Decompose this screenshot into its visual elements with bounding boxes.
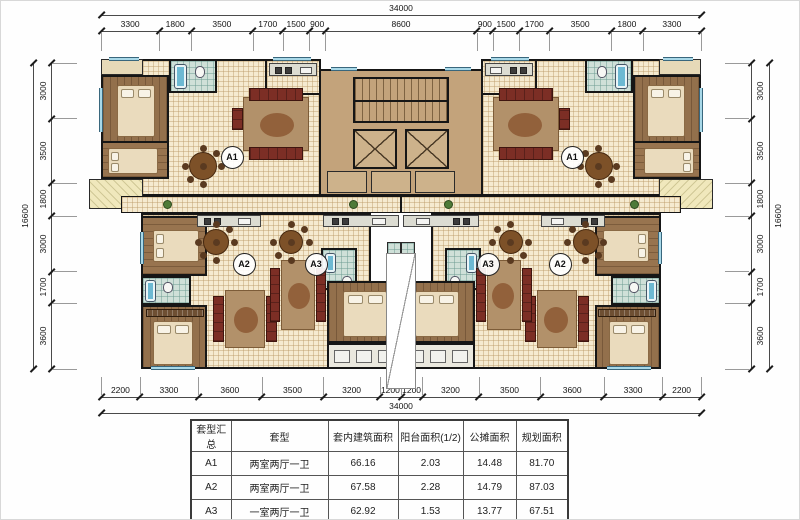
elevator-shaft	[353, 129, 397, 169]
unit-label-circle: A1	[561, 146, 584, 169]
dining-table	[203, 229, 229, 255]
window	[658, 232, 662, 264]
table-cell: 两室两厅一卫	[231, 476, 328, 500]
kitchen-sink	[300, 67, 312, 74]
toilet	[597, 66, 607, 78]
extension-line	[53, 118, 77, 119]
window	[140, 232, 144, 264]
floor-plan-sheet: 3400033001800350017001500900860090015001…	[0, 0, 800, 520]
kitchen-sink	[416, 218, 430, 225]
dimension-line	[769, 63, 770, 369]
rug-pattern	[508, 113, 542, 137]
sofa	[213, 296, 224, 342]
unit-a2-bathroom	[141, 276, 191, 305]
dimension-total-label: 34000	[389, 401, 413, 411]
pillow	[439, 295, 454, 304]
dimension-label: 3300	[662, 19, 681, 29]
armchair	[559, 108, 570, 130]
meter-room	[327, 171, 367, 193]
extension-line	[53, 271, 77, 272]
corridor	[401, 196, 681, 213]
dining-table	[189, 152, 217, 180]
pillow	[175, 325, 189, 334]
sofa	[522, 268, 532, 322]
table-header-cell: 套型汇总	[191, 420, 231, 452]
pillow	[683, 152, 691, 161]
plant	[630, 200, 639, 209]
bed	[647, 85, 685, 137]
unit-a1-bedroom-2	[633, 141, 701, 179]
window	[663, 57, 693, 61]
window	[99, 88, 103, 132]
unit-summary-table: 套型汇总套型套内建筑面积阳台面积(1/2)公摊面积规划面积 A1两室两厅一卫66…	[190, 419, 569, 520]
dimension-label: 3500	[212, 19, 231, 29]
dining-table	[499, 230, 523, 254]
rug-pattern	[492, 283, 514, 309]
dimension-label: 1500	[497, 19, 516, 29]
plant	[349, 200, 358, 209]
toilet	[163, 282, 173, 293]
extension-line	[53, 369, 77, 370]
extension-line	[725, 303, 749, 304]
table-row: A2两室两厅一卫67.582.2814.7987.03	[191, 476, 568, 500]
unit-a1-bathroom	[585, 59, 633, 93]
extension-line	[701, 377, 702, 395]
unit-label-circle: A1	[221, 146, 244, 169]
table-cell: A2	[191, 476, 231, 500]
bed	[117, 85, 155, 137]
elevator-shaft	[405, 129, 449, 169]
pillow	[348, 295, 363, 304]
bathtub-water	[148, 283, 153, 299]
sofa	[499, 147, 553, 160]
table-cell: 67.58	[328, 476, 398, 500]
dimension-tick	[697, 11, 704, 18]
kitchen-sink	[490, 67, 502, 74]
dimension-label: 900	[310, 19, 324, 29]
unit-label-circle: A3	[477, 253, 500, 276]
dimension-label: 3600	[38, 326, 48, 345]
stove-hob	[275, 67, 282, 74]
rug-pattern	[260, 113, 294, 137]
table-cell: 67.51	[516, 500, 568, 520]
bed	[153, 230, 199, 262]
dimension-label: 900	[478, 19, 492, 29]
unit-a2-bathroom	[611, 276, 661, 305]
stove-hob	[453, 218, 460, 225]
unit-a2-bedroom-2	[595, 305, 661, 369]
rug-pattern	[544, 307, 568, 333]
table-header-cell: 公摊面积	[463, 420, 516, 452]
dimension-tick	[765, 365, 772, 372]
window	[151, 366, 195, 370]
plant	[444, 200, 453, 209]
unit-label-circle: A2	[549, 253, 572, 276]
dimension-line	[101, 413, 701, 414]
extension-line	[725, 271, 749, 272]
unit-a1-closet	[659, 59, 701, 75]
table-cell: A1	[191, 452, 231, 476]
staircase	[353, 77, 449, 123]
meter-room	[371, 171, 411, 193]
dimension-label: 1700	[258, 19, 277, 29]
sofa	[249, 147, 303, 160]
table-cell: 66.16	[328, 452, 398, 476]
bed	[603, 230, 649, 262]
extension-line	[53, 303, 77, 304]
table-cell: 14.79	[463, 476, 516, 500]
table-cell: A3	[191, 500, 231, 520]
sofa	[578, 296, 589, 342]
dining-table	[573, 229, 599, 255]
stove-hob	[520, 67, 527, 74]
living-room-rug	[493, 97, 559, 151]
dimension-label: 1500	[287, 19, 306, 29]
unit-summary: 套型汇总套型套内建筑面积阳台面积(1/2)公摊面积规划面积 A1两室两厅一卫66…	[190, 419, 569, 520]
dimension-label: 3500	[755, 141, 765, 160]
extension-line	[53, 183, 77, 184]
stove-hob	[342, 218, 349, 225]
table-cell: 2.03	[398, 452, 463, 476]
pillow	[668, 89, 681, 98]
stove-hob	[204, 218, 211, 225]
window	[273, 57, 311, 61]
dimension-label: 3000	[755, 234, 765, 253]
table-row: 套型汇总套型套内建筑面积阳台面积(1/2)公摊面积规划面积	[191, 420, 568, 452]
window	[699, 88, 703, 132]
plant	[163, 200, 172, 209]
window	[491, 57, 529, 61]
bathtub-water	[328, 256, 333, 270]
kitchen-counter	[403, 215, 479, 227]
extension-line	[53, 216, 77, 217]
table-header-cell: 阳台面积(1/2)	[398, 420, 463, 452]
bathtub-water	[618, 67, 625, 86]
table-cell: 2.28	[398, 476, 463, 500]
unit-label-circle: A2	[233, 253, 256, 276]
window	[109, 57, 139, 61]
dimension-tick	[29, 365, 36, 372]
window	[607, 366, 651, 370]
appliance	[356, 350, 372, 363]
dimension-label: 3000	[38, 234, 48, 253]
rug-pattern	[234, 307, 258, 333]
armchair	[232, 108, 243, 130]
stove-hob	[591, 218, 598, 225]
pillow	[111, 163, 119, 172]
unit-a1-bedroom-2	[101, 141, 169, 179]
bed	[153, 321, 193, 365]
living-room-rug	[537, 290, 577, 348]
extension-line	[725, 63, 749, 64]
table-cell: 81.70	[516, 452, 568, 476]
table-header-cell: 套型	[231, 420, 328, 452]
bathtub-water	[469, 256, 474, 270]
kitchen-counter	[197, 215, 261, 227]
table-cell: 一室两厅一卫	[231, 500, 328, 520]
unit-a2-bedroom-2	[141, 305, 207, 369]
dimension-label: 1700	[38, 278, 48, 297]
sofa	[476, 268, 486, 322]
dimension-total-label: 16600	[20, 204, 30, 228]
wardrobe	[598, 309, 656, 317]
pillow	[638, 248, 646, 258]
pillow	[683, 163, 691, 172]
kitchen-sink	[238, 218, 251, 225]
bed	[644, 148, 694, 174]
stove-hob	[214, 218, 221, 225]
table-header-cell: 规划面积	[516, 420, 568, 452]
dimension-label: 1800	[166, 19, 185, 29]
pillow	[111, 152, 119, 161]
extension-line	[725, 183, 749, 184]
stove-hob	[581, 218, 588, 225]
kitchen-counter	[323, 215, 399, 227]
living-room-rug	[243, 97, 309, 151]
dimension-label: 3300	[121, 19, 140, 29]
kitchen-counter	[485, 63, 533, 76]
washing-machine	[452, 350, 468, 363]
dimension-total-label: 16600	[773, 204, 783, 228]
sofa	[499, 88, 553, 101]
dimension-label: 1800	[617, 19, 636, 29]
light-well	[386, 253, 416, 389]
dimension-label: 3000	[755, 81, 765, 100]
dining-table	[279, 230, 303, 254]
bed	[609, 321, 649, 365]
pillow	[638, 234, 646, 244]
table-cell: 62.92	[328, 500, 398, 520]
pillow	[419, 295, 434, 304]
dimension-label: 3600	[755, 326, 765, 345]
toilet	[629, 282, 639, 293]
bathtub	[174, 64, 187, 89]
sofa	[316, 268, 326, 322]
bathtub	[145, 280, 156, 302]
table-row: A3一室两厅一卫62.921.5313.7767.51	[191, 500, 568, 520]
kitchen-sink	[551, 218, 564, 225]
unit-a1-bathroom	[169, 59, 217, 93]
unit-label-circle: A3	[305, 253, 328, 276]
stove-hob	[463, 218, 470, 225]
washing-machine	[334, 350, 350, 363]
pillow	[156, 248, 164, 258]
table-header-row: 套型汇总套型套内建筑面积阳台面积(1/2)公摊面积规划面积	[191, 420, 568, 452]
wardrobe	[146, 309, 204, 317]
table-cell: 14.48	[463, 452, 516, 476]
pillow	[631, 325, 645, 334]
pillow	[651, 89, 664, 98]
bathtub-water	[649, 283, 654, 299]
dimension-total-label: 34000	[389, 3, 413, 13]
stove-hob	[285, 67, 292, 74]
dimension-label: 1700	[755, 278, 765, 297]
kitchen-sink	[372, 218, 386, 225]
dimension-label: 8600	[392, 19, 411, 29]
extension-line	[725, 369, 749, 370]
pillow	[368, 295, 383, 304]
dimension-label: 3000	[38, 81, 48, 100]
pillow	[156, 234, 164, 244]
meter-room	[415, 171, 455, 193]
pillow	[157, 325, 171, 334]
unit-a1-bedroom-1	[633, 75, 701, 145]
bathtub-water	[177, 67, 184, 86]
stove-hob	[510, 67, 517, 74]
bed	[108, 148, 158, 174]
dimension-tick	[697, 409, 704, 416]
appliance	[430, 350, 446, 363]
dimension-line	[33, 63, 34, 369]
unit-a1-closet	[101, 59, 143, 75]
toilet	[195, 66, 205, 78]
pillow	[121, 89, 134, 98]
pillow	[138, 89, 151, 98]
dining-table	[585, 152, 613, 180]
bathtub	[615, 64, 628, 89]
stair-landing-divider	[355, 100, 447, 102]
dimension-label: 3500	[38, 141, 48, 160]
table-cell: 87.03	[516, 476, 568, 500]
bed	[343, 291, 387, 337]
table-cell: 两室两厅一卫	[231, 452, 328, 476]
table-row: A1两室两厅一卫66.162.0314.4881.70	[191, 452, 568, 476]
extension-line	[701, 33, 702, 51]
pillow	[613, 325, 627, 334]
bathtub	[646, 280, 657, 302]
extension-line	[53, 63, 77, 64]
dimension-label: 1800	[755, 190, 765, 209]
rug-pattern	[288, 283, 310, 309]
unit-a1-bedroom-1	[101, 75, 169, 145]
dimension-label: 1700	[525, 19, 544, 29]
kitchen-counter	[541, 215, 605, 227]
kitchen-counter	[269, 63, 317, 76]
dimension-label: 3500	[571, 19, 590, 29]
window	[331, 67, 357, 71]
sofa	[249, 88, 303, 101]
window	[445, 67, 471, 71]
table-cell: 13.77	[463, 500, 516, 520]
table-body: A1两室两厅一卫66.162.0314.4881.70A2两室两厅一卫67.58…	[191, 452, 568, 520]
extension-line	[725, 216, 749, 217]
dimension-line	[101, 15, 701, 16]
dimension-label: 1800	[38, 190, 48, 209]
stove-hob	[332, 218, 339, 225]
extension-line	[725, 118, 749, 119]
table-cell: 1.53	[398, 500, 463, 520]
bed	[415, 291, 459, 337]
sofa	[270, 268, 280, 322]
table-header-cell: 套内建筑面积	[328, 420, 398, 452]
living-room-rug	[225, 290, 265, 348]
